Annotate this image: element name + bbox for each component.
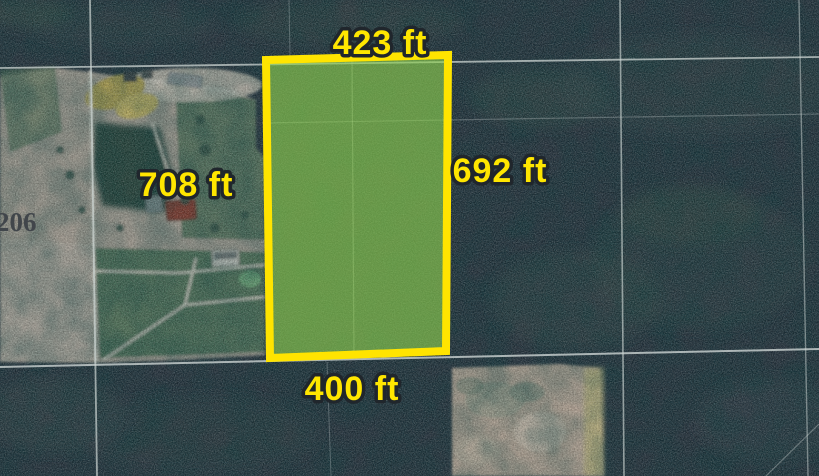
road-label-206: 206 bbox=[0, 207, 37, 237]
map-canvas: 206 423 ft 708 ft 692 ft 400 ft bbox=[0, 0, 819, 476]
dimension-label-right: 692 ft bbox=[453, 152, 548, 190]
parcel-boundary bbox=[266, 55, 448, 358]
satellite-map-view[interactable]: 206 423 ft 708 ft 692 ft 400 ft bbox=[0, 0, 819, 476]
dimension-label-top: 423 ft bbox=[333, 24, 428, 62]
dimension-label-bottom: 400 ft bbox=[305, 370, 400, 408]
dimension-label-left: 708 ft bbox=[139, 166, 234, 204]
